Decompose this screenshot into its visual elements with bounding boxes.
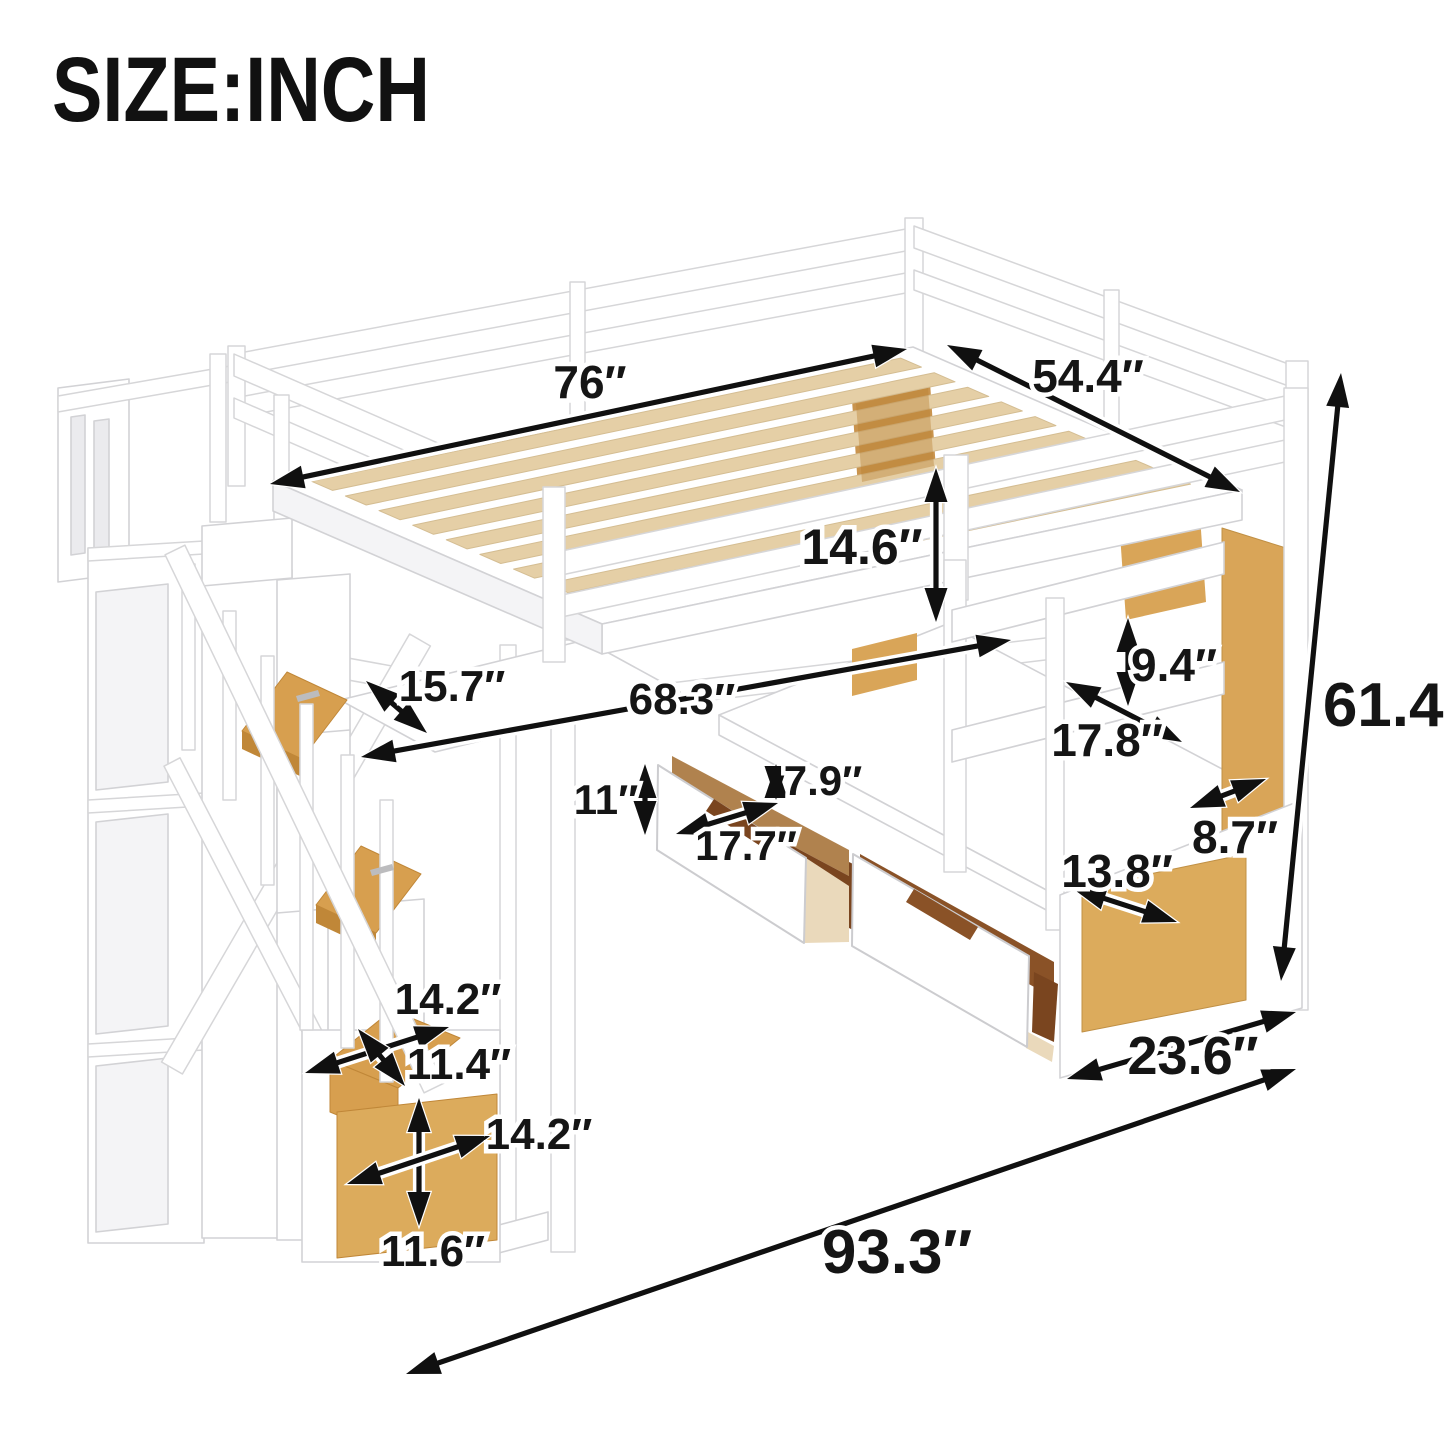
svg-text:11.6″: 11.6″ xyxy=(381,1227,485,1276)
svg-text:7.9″: 7.9″ xyxy=(784,757,863,804)
svg-text:11.4″: 11.4″ xyxy=(407,1040,511,1089)
svg-text:8.7″: 8.7″ xyxy=(1192,811,1278,863)
svg-text:54.4″: 54.4″ xyxy=(1032,350,1144,402)
svg-text:14.2″: 14.2″ xyxy=(395,975,502,1024)
svg-text:68.3″: 68.3″ xyxy=(629,675,736,724)
svg-text:17.7″: 17.7″ xyxy=(695,822,797,869)
svg-text:SIZE:INCH: SIZE:INCH xyxy=(52,39,430,141)
svg-text:61.4″: 61.4″ xyxy=(1323,671,1445,740)
svg-text:11″: 11″ xyxy=(574,776,639,823)
svg-text:14.6″: 14.6″ xyxy=(801,519,922,575)
svg-text:13.8″: 13.8″ xyxy=(1061,845,1173,897)
svg-text:17.8″: 17.8″ xyxy=(1051,714,1163,766)
svg-text:15.7″: 15.7″ xyxy=(399,662,506,711)
svg-text:76″: 76″ xyxy=(553,356,626,408)
svg-text:9.4″: 9.4″ xyxy=(1131,639,1217,691)
svg-text:23.6″: 23.6″ xyxy=(1128,1026,1259,1086)
svg-text:14.2″: 14.2″ xyxy=(486,1110,593,1159)
svg-text:93.3″: 93.3″ xyxy=(822,1218,972,1287)
